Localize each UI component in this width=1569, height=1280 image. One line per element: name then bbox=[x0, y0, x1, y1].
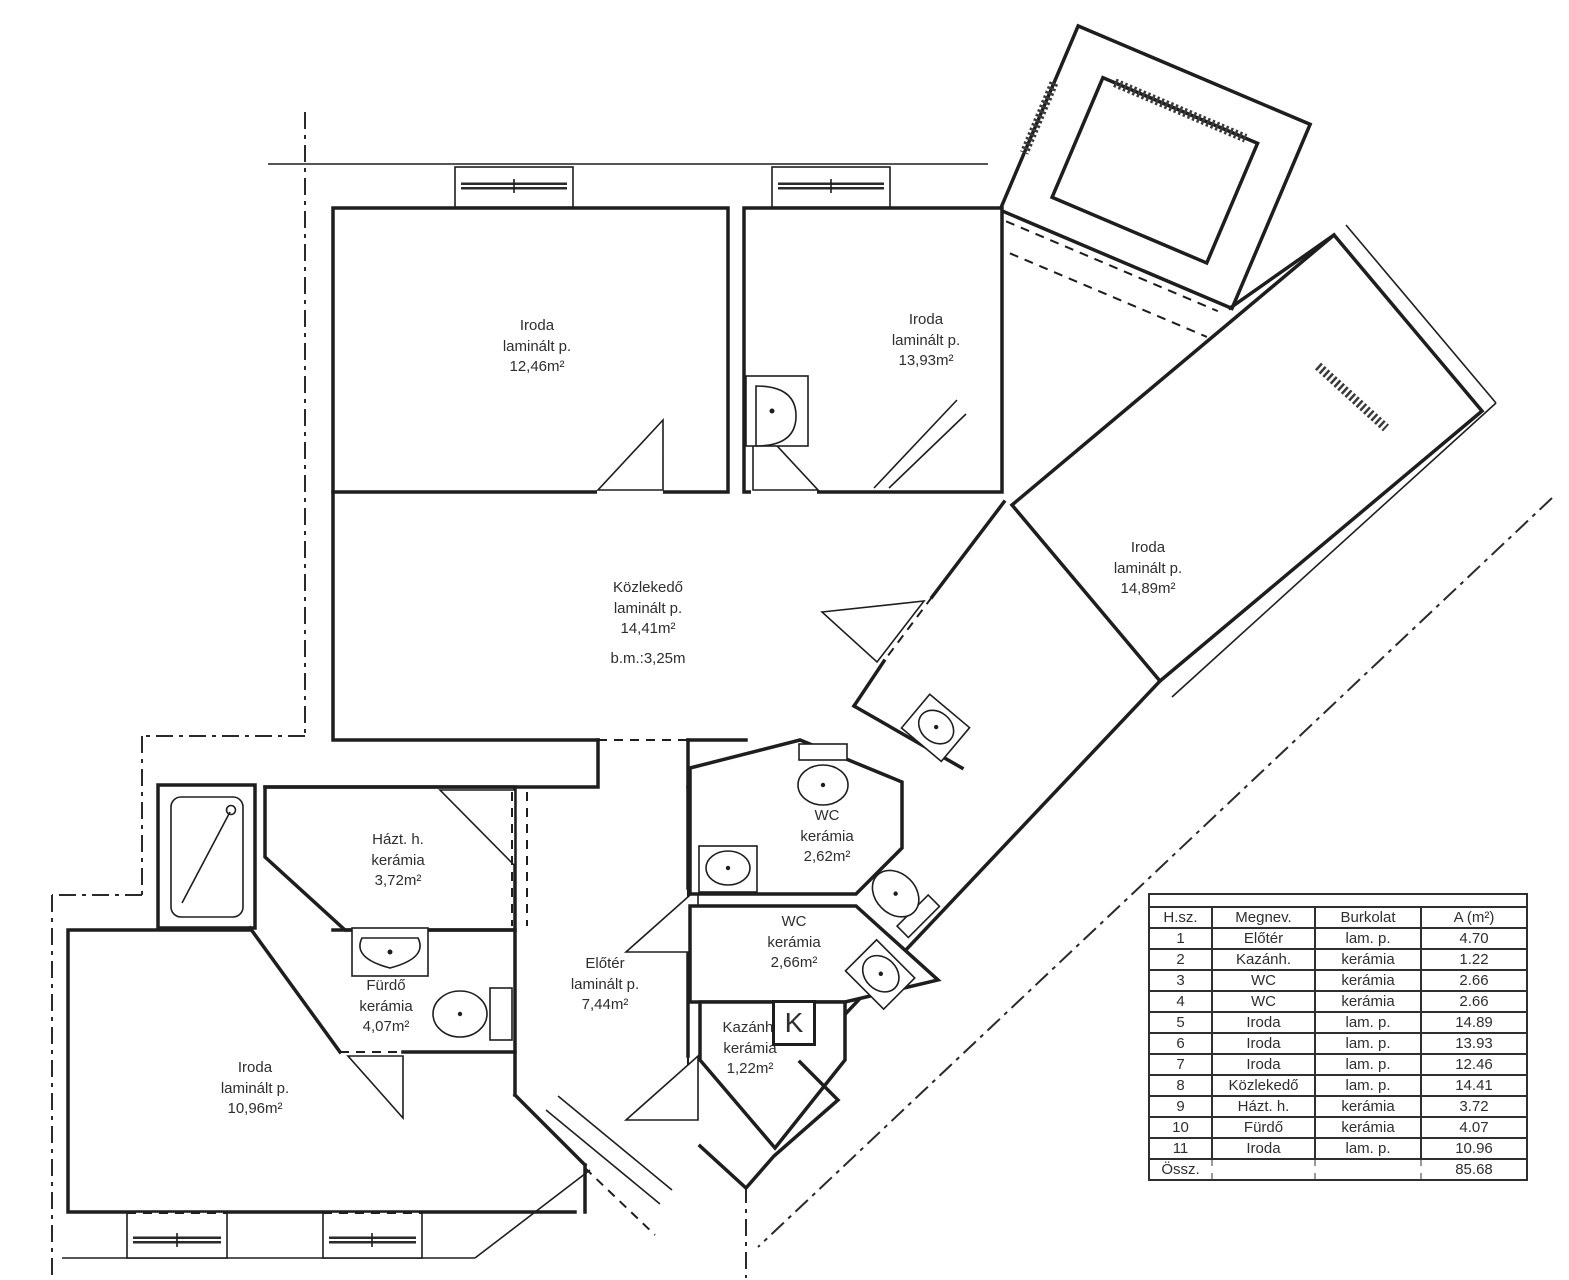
sink-icon bbox=[901, 694, 969, 761]
door-swing-icon bbox=[348, 1056, 403, 1118]
room-label-wc2: WCkerámia2,66m² bbox=[767, 912, 820, 974]
shower-icon bbox=[158, 785, 255, 928]
table-row: 6Irodalam. p.13.93 bbox=[1149, 1033, 1527, 1054]
table-row: 7Irodalam. p.12.46 bbox=[1149, 1054, 1527, 1075]
total-value: 85.68 bbox=[1421, 1159, 1527, 1180]
window-icon bbox=[455, 167, 573, 208]
table-row: 8Közlekedőlam. p.14.41 bbox=[1149, 1075, 1527, 1096]
table-row: 2Kazánh.kerámia1.22 bbox=[1149, 949, 1527, 970]
room-label-wc1: WCkerámia2,62m² bbox=[800, 806, 853, 868]
table-top-band bbox=[1149, 894, 1527, 907]
table-row: 5Irodalam. p.14.89 bbox=[1149, 1012, 1527, 1033]
room-label-hazt: Házt. h.kerámia3,72m² bbox=[371, 830, 424, 892]
table-row: 4WCkerámia2.66 bbox=[1149, 991, 1527, 1012]
room-label-iroda-5: Irodalaminált p.14,89m² bbox=[1114, 538, 1182, 600]
room-label-kozlekedo: Közlekedőlaminált p.14,41m² bbox=[613, 578, 683, 640]
entrance-wing bbox=[986, 26, 1496, 697]
top-windows bbox=[455, 167, 890, 208]
total-label: Össz. bbox=[1149, 1159, 1212, 1180]
window-icon bbox=[323, 1212, 422, 1258]
table-row: 11Irodalam. p.10.96 bbox=[1149, 1138, 1527, 1159]
table-row: 9Házt. h.kerámia3.72 bbox=[1149, 1096, 1527, 1117]
header-burkolat: Burkolat bbox=[1315, 907, 1421, 928]
room-iroda-11-outline bbox=[68, 930, 585, 1212]
header-area: A (m²) bbox=[1421, 907, 1527, 928]
room-label-iroda-6: Irodalaminált p.13,93m² bbox=[892, 310, 960, 372]
table-header-row: H.sz. Megnev. Burkolat A (m²) bbox=[1149, 907, 1527, 928]
sink-icon bbox=[746, 376, 808, 446]
room-label-eloter: Előtérlaminált p.7,44m² bbox=[571, 954, 639, 1016]
room-schedule-table: H.sz. Megnev. Burkolat A (m²) 1Előtérlam… bbox=[1148, 893, 1528, 1181]
window-icon bbox=[127, 1212, 227, 1258]
room-label-kazanh: Kazánh.kerámia1,22m² bbox=[722, 1018, 777, 1080]
sink-icon bbox=[699, 846, 757, 892]
door-swing-icon bbox=[626, 1056, 698, 1120]
toilet-icon bbox=[433, 988, 512, 1040]
table-row: 3WCkerámia2.66 bbox=[1149, 970, 1527, 991]
floor-plan-page: Irodalaminált p.12,46m² Irodalaminált p.… bbox=[0, 0, 1569, 1280]
window-icon bbox=[772, 167, 890, 208]
table-total-row: Össz. 85.68 bbox=[1149, 1159, 1527, 1180]
room-label-iroda-11: Irodalaminált p.10,96m² bbox=[221, 1058, 289, 1120]
ceiling-height-note: b.m.:3,25m bbox=[610, 650, 685, 667]
table-row: 10Fürdőkerámia4.07 bbox=[1149, 1117, 1527, 1138]
room-label-iroda-7: Irodalaminált p.12,46m² bbox=[503, 316, 571, 378]
room-label-furdo: Fürdőkerámia4,07m² bbox=[359, 976, 412, 1038]
toilet-icon bbox=[798, 744, 848, 805]
table-row: 1Előtérlam. p.4.70 bbox=[1149, 928, 1527, 949]
boiler-symbol: K bbox=[772, 1000, 816, 1046]
sink-icon bbox=[352, 928, 428, 976]
room-iroda-6-outline bbox=[744, 208, 1002, 492]
header-megnev: Megnev. bbox=[1212, 907, 1315, 928]
header-hsz: H.sz. bbox=[1149, 907, 1212, 928]
door-swing-icon bbox=[626, 888, 698, 952]
